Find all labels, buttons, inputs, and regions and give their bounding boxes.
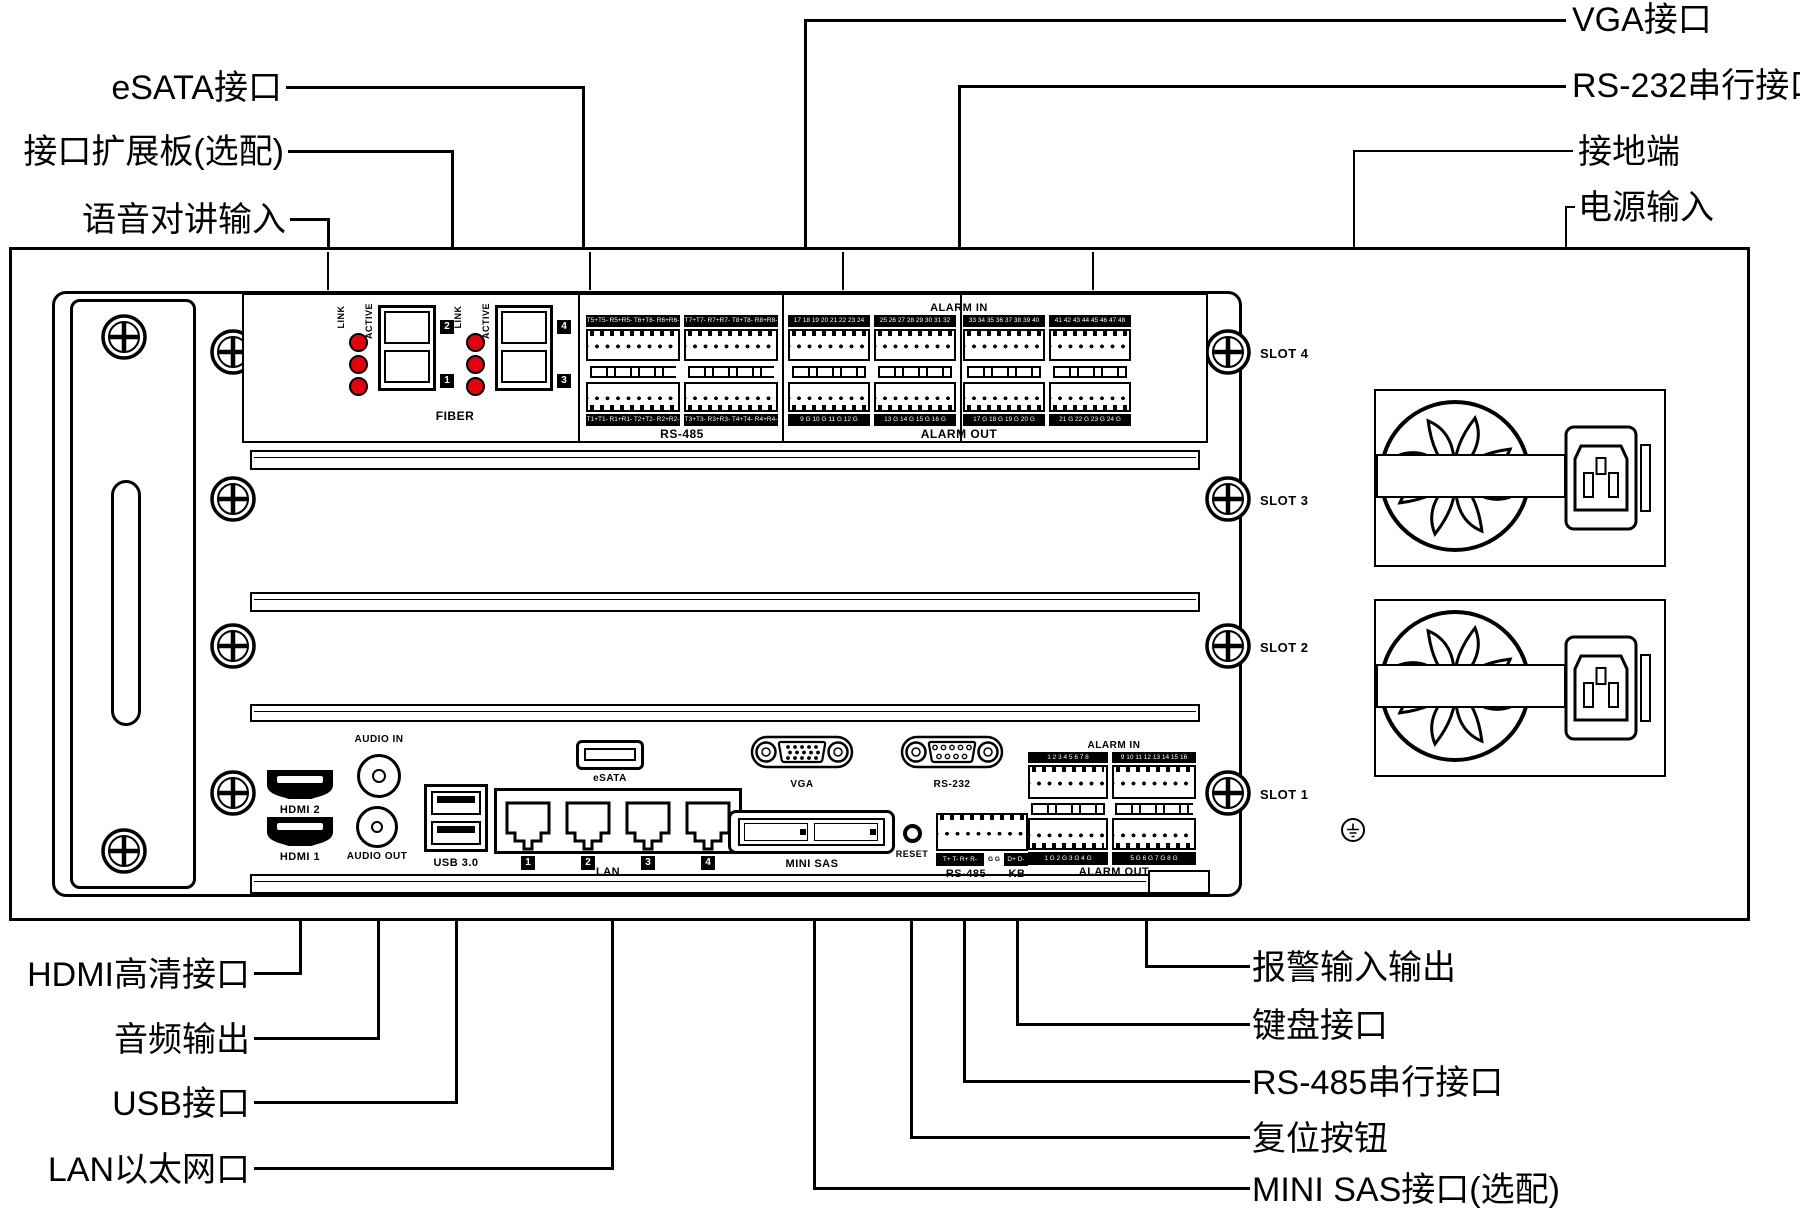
screw-icon (209, 622, 257, 670)
fiber-led (466, 355, 485, 374)
hdmi1-label: HDMI 1 (265, 851, 335, 863)
callout-audio-out: 音频输出 (0, 1020, 250, 1060)
reset-button (903, 824, 922, 843)
rj45-port (624, 800, 672, 852)
leader-rs232 (960, 85, 1566, 88)
jumper-row (1115, 803, 1193, 815)
fiber-port-badge: 4 (557, 320, 571, 334)
jumper-row (1053, 366, 1127, 378)
board-divider (782, 293, 784, 443)
terminal-strip: T1+T1- R1+R1- T2+T2- R2+R2- (586, 414, 680, 426)
terminal-connector (874, 329, 956, 361)
terminal-connector (684, 329, 778, 361)
lan-port-number: 4 (701, 856, 715, 870)
callout-keyboard: 键盘接口 (1252, 1006, 1388, 1046)
jumper-row (590, 366, 676, 378)
screw-icon (1204, 328, 1252, 376)
panel-seam (1092, 252, 1094, 290)
leader-vga (806, 19, 1566, 22)
terminal-connector (586, 329, 680, 361)
fiber-port (501, 350, 547, 383)
lan-port-number: 3 (641, 856, 655, 870)
alarm-in-strip: 1 2 3 4 5 6 7 8 (1028, 752, 1108, 763)
rear-panel-diagram: eSATA接口 接口扩展板(选配) 语音对讲输入 VGA接口 RS-232串行接… (0, 0, 1800, 1209)
panel-seam (327, 252, 329, 290)
alarm-in-header: ALARM IN (788, 302, 1130, 314)
lan-label: LAN (585, 866, 631, 878)
usb-tongue (437, 826, 475, 833)
leader-hdmi (254, 972, 302, 975)
usb-port (431, 821, 481, 845)
fan-mount-bar (1376, 454, 1566, 498)
hdmi1-port (265, 815, 335, 849)
link-label: LINK (453, 295, 463, 339)
active-label: ACTIVE (481, 299, 491, 343)
alarm-in-strip: 9 10 11 12 13 14 15 16 (1112, 752, 1196, 763)
ground-terminal-icon (1339, 816, 1367, 844)
bracket-handle-slot (111, 480, 141, 726)
rs485-port-label: RS-485 (938, 868, 994, 880)
mini-sas-latch (800, 829, 806, 835)
leader-usb (254, 1101, 458, 1104)
fiber-port-badge: 2 (440, 320, 454, 334)
leader-power (1566, 206, 1575, 208)
alarm-terminal (1112, 765, 1196, 799)
screw-icon (1204, 475, 1252, 523)
terminal-strip: T5+T5- R5+R5- T6+T6- R6+R6- (586, 315, 680, 327)
leader-minisas (813, 1187, 1250, 1190)
terminal-strip: 25 26 27 28 29 30 31 32 (874, 315, 956, 327)
esata-slot (584, 748, 636, 761)
fan-mount-bar (1376, 664, 1566, 708)
callout-lan: LAN以太网口 (0, 1150, 250, 1190)
callout-power-input: 电源输入 (1578, 188, 1714, 228)
board-divider (960, 293, 962, 443)
callout-reset: 复位按钮 (1252, 1119, 1388, 1159)
callout-hdmi: HDMI高清接口 (0, 955, 250, 995)
rs485-board-label: RS-485 (586, 427, 778, 441)
callout-expansion-board: 接口扩展板(选配) (0, 132, 284, 172)
rj45-port (564, 800, 612, 852)
rj45-port (684, 800, 732, 852)
fiber-led (349, 377, 368, 396)
fiber-led (466, 377, 485, 396)
usb-label: USB 3.0 (424, 857, 488, 869)
terminal-connector (874, 382, 956, 412)
mini-sas-label: MINI SAS (771, 858, 853, 870)
lan-port-number: 1 (521, 856, 535, 870)
esata-label: eSATA (580, 773, 640, 784)
callout-rs485: RS-485串行接口 (1252, 1063, 1503, 1103)
rs232-connector (900, 731, 1004, 773)
leader-lan-v (611, 880, 614, 1170)
fiber-port (384, 350, 430, 383)
power-inlet-clip (1640, 444, 1651, 512)
audio-out-jack-hole (371, 821, 383, 833)
screw-icon (100, 313, 148, 361)
callout-vga: VGA接口 (1572, 0, 1712, 40)
callout-mini-sas: MINI SAS接口(选配) (1252, 1170, 1560, 1209)
callout-alarm-io: 报警输入输出 (1252, 948, 1456, 988)
rs485-terminal (936, 813, 1028, 851)
vga-connector (750, 731, 854, 773)
alarm-in-label: ALARM IN (1062, 740, 1166, 751)
screw-icon (209, 475, 257, 523)
fiber-port (501, 311, 547, 344)
blank-plate (250, 450, 1200, 470)
callout-usb: USB接口 (0, 1084, 250, 1124)
panel-seam (842, 252, 844, 290)
leader-lan (254, 1167, 614, 1170)
slot-label-2: SLOT 2 (1260, 640, 1309, 655)
callout-esata: eSATA接口 (0, 68, 282, 108)
terminal-strip: 33 34 35 36 37 38 39 40 (963, 315, 1045, 327)
slot-label-1: SLOT 1 (1260, 787, 1309, 802)
fiber-port-badge: 1 (440, 374, 454, 388)
audio-out-label: AUDIO OUT (335, 851, 419, 862)
screw-icon (209, 769, 257, 817)
leader-rs485 (963, 1080, 1250, 1083)
leader-audio-talk (290, 218, 330, 221)
screw-icon (1204, 622, 1252, 670)
active-label: ACTIVE (364, 299, 374, 343)
terminal-connector (1049, 382, 1131, 412)
leader-audio-out (254, 1037, 380, 1040)
terminal-strip: 41 42 43 44 45 46 47 48 (1049, 315, 1131, 327)
power-inlet-1 (1564, 425, 1638, 531)
jumper-row (878, 366, 952, 378)
mini-sas-latch (870, 829, 876, 835)
audio-in-label: AUDIO IN (339, 734, 419, 745)
jumper-row (1031, 803, 1105, 815)
terminal-connector (788, 329, 870, 361)
callout-audio-talk-in: 语音对讲输入 (0, 200, 286, 240)
fiber-port (384, 311, 430, 344)
alarm-terminal (1112, 818, 1196, 850)
terminal-strip: 17 G 18 G 19 G 20 G (963, 414, 1045, 426)
slot-label-3: SLOT 3 (1260, 493, 1309, 508)
alarm-out-board-label: ALARM OUT (788, 427, 1130, 441)
blank-plate (250, 592, 1200, 612)
terminal-connector (586, 382, 680, 412)
terminal-strip: 13 G 14 G 15 G 16 G (874, 414, 956, 426)
alarm-out-strip: 1 G 2 G 3 G 4 G (1028, 852, 1108, 865)
leader-expansion (288, 150, 454, 153)
mini-sas-window (744, 823, 808, 841)
fiber-label: FIBER (400, 409, 510, 423)
leader-kb (1016, 1023, 1250, 1026)
jumper-row (792, 366, 866, 378)
vga-label: VGA (786, 779, 818, 790)
usb-port (431, 791, 481, 815)
rs485-strip: T+ T- R+ R- (936, 853, 984, 866)
terminal-strip: T3+T3- R3+R3- T4+T4- R4+R4- (684, 414, 778, 426)
terminal-strip: 21 G 22 G 23 G 24 G (1049, 414, 1131, 426)
rj45-port (504, 800, 552, 852)
hdmi2-port (265, 768, 335, 802)
callout-rs232: RS-232串行接口 (1572, 66, 1800, 106)
alarm-terminal (1028, 765, 1108, 799)
kb-port-label: KB (1004, 868, 1030, 880)
leader-esata (286, 86, 585, 89)
leader-reset (910, 1136, 1250, 1139)
terminal-strip: T7+T7- R7+R7- T8+T8- R8+R8- (684, 315, 778, 327)
jumper-row (967, 366, 1041, 378)
jumper-row (688, 366, 774, 378)
blank-plate (250, 704, 1200, 722)
terminal-connector (788, 382, 870, 412)
link-label: LINK (336, 295, 346, 339)
callout-ground: 接地端 (1578, 132, 1680, 172)
leader-alarm (1145, 965, 1250, 968)
panel-seam (589, 252, 591, 290)
alarm-out-label: ALARM OUT (1062, 866, 1166, 878)
terminal-connector (963, 382, 1045, 412)
alarm-terminal (1028, 818, 1108, 850)
power-inlet-clip (1640, 654, 1651, 722)
audio-in-jack-hole (372, 769, 386, 783)
leader-ground (1355, 150, 1573, 152)
terminal-strip: 17 18 19 20 21 22 23 24 (788, 315, 870, 327)
reset-label: RESET (888, 849, 936, 859)
screw-icon (100, 827, 148, 875)
terminal-connector (1049, 329, 1131, 361)
alarm-out-strip: 5 G 6 G 7 G 8 G (1112, 852, 1196, 865)
terminal-strip: 9 G 10 G 11 G 12 G (788, 414, 870, 426)
mini-sas-window (814, 823, 878, 841)
screw-icon (1204, 769, 1252, 817)
kb-strip: D+ D- (1004, 853, 1028, 866)
fiber-led (349, 355, 368, 374)
slot-label-4: SLOT 4 (1260, 346, 1309, 361)
board-divider (578, 293, 580, 443)
gg-strip: G G (986, 853, 1002, 866)
terminal-connector (684, 382, 778, 412)
power-inlet-2 (1564, 635, 1638, 741)
usb-tongue (437, 796, 475, 803)
rs232-label: RS-232 (926, 779, 978, 790)
terminal-connector (963, 329, 1045, 361)
fiber-port-badge: 3 (557, 374, 571, 388)
